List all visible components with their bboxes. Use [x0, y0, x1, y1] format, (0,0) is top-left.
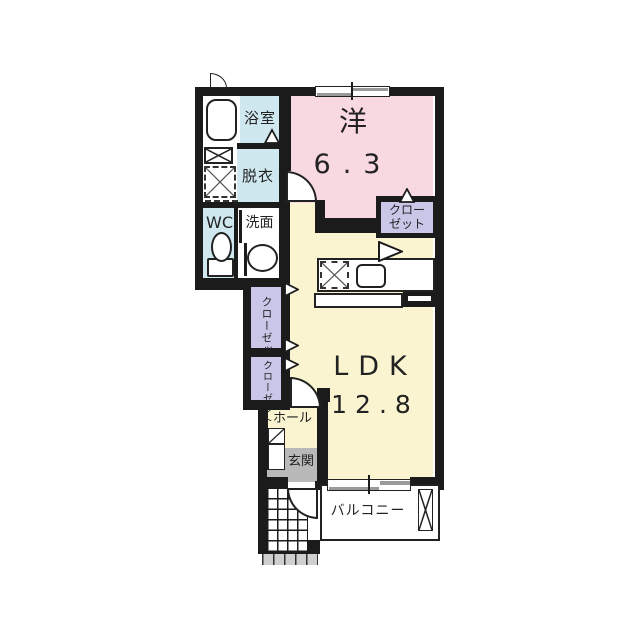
room-label-ldk: LDK	[333, 351, 417, 382]
bathtub	[206, 99, 237, 141]
room-size-ldk: 12.8	[331, 391, 419, 420]
door-swing-triangle	[284, 282, 299, 297]
wall	[315, 218, 382, 233]
wall	[195, 202, 290, 208]
closet-right: クロー ゼット	[381, 202, 433, 233]
western-size-box: 6.3	[283, 147, 423, 183]
wall	[195, 87, 203, 290]
western-label-box: 洋	[283, 103, 423, 141]
hall-label-box: ホール	[268, 410, 317, 428]
room-label-hall: ホール	[273, 412, 312, 427]
window-pane	[329, 487, 379, 490]
door-swing-triangle	[284, 338, 299, 353]
door-arc-exterior-small	[210, 73, 227, 88]
wall	[435, 87, 444, 490]
floor-plan: クローゼット クローゼット クロー ゼット	[0, 0, 640, 640]
x-mark-icon	[206, 168, 234, 196]
wc-label-box: WC	[203, 211, 236, 235]
dressing-label-box: 脱衣	[236, 162, 280, 192]
closet-left-upper: クローゼット	[251, 287, 281, 348]
toilet-bowl	[211, 232, 232, 262]
ldk-label-box: LDK	[317, 351, 433, 383]
closet-left-lower: クローゼット	[251, 357, 281, 400]
door-swing-triangle	[284, 357, 299, 372]
x-mark-icon	[419, 490, 432, 530]
room-label-bath: 浴室	[244, 110, 276, 127]
room-label-dressing: 脱衣	[242, 168, 274, 185]
door-swing-triangle	[399, 188, 415, 203]
ldk-size-box: 12.8	[317, 390, 433, 420]
shoe-cabinet	[268, 444, 285, 470]
balcony-label-box: バルコニー	[324, 501, 412, 521]
bath-label-box: 浴室	[238, 102, 282, 136]
sliding-door-line	[244, 243, 247, 276]
pipe-space-box	[204, 147, 233, 164]
room-label-washroom: 洗面	[246, 215, 274, 231]
window-tick	[351, 82, 353, 100]
closet-label-line1: クロー	[389, 204, 425, 218]
closet-label: クローゼット	[260, 360, 273, 398]
closet-label-line2: ゼット	[389, 218, 425, 232]
diagonal-mark-icon	[269, 429, 284, 443]
room-label-balcony: バルコニー	[331, 503, 406, 519]
kitchen-lower-counter	[314, 293, 403, 308]
entrance-label-box: 玄関	[285, 452, 317, 472]
window-tick	[368, 475, 370, 494]
kitchen-sink	[356, 264, 386, 288]
washer-space-box	[204, 166, 236, 198]
fridge-space-box	[320, 261, 349, 289]
room-label-entrance: 玄関	[288, 455, 314, 470]
wall	[279, 203, 290, 278]
x-mark-icon	[206, 149, 231, 162]
x-mark-icon	[322, 263, 347, 287]
entrance-step	[262, 552, 318, 565]
vent-slit	[408, 296, 431, 301]
wash-basin	[247, 244, 278, 272]
shoe-cabinet	[268, 428, 285, 444]
window-pane	[317, 93, 353, 96]
window-pane	[352, 88, 388, 91]
door-swing-triangle	[378, 241, 403, 262]
balcony-pillar-marker	[418, 489, 433, 531]
folding-door-dash	[205, 200, 238, 202]
room-label-western: 洋	[339, 106, 367, 138]
room-size-western: 6.3	[314, 149, 393, 180]
window-pane	[380, 481, 410, 485]
washroom-label-box: 洗面	[240, 211, 279, 235]
closet-label: クローゼット	[259, 296, 273, 340]
room-label-wc: WC	[206, 214, 233, 232]
